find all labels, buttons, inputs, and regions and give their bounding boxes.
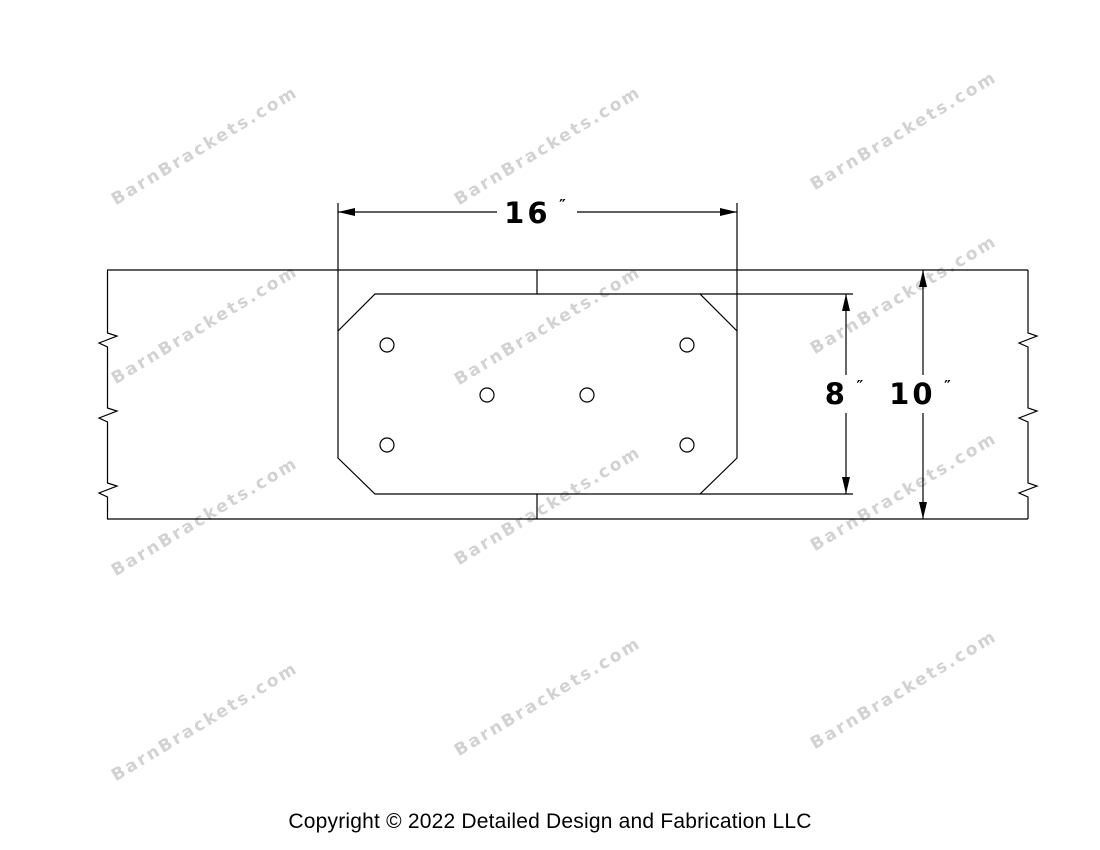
copyright-text: Copyright © 2022 Detailed Design and Fab… xyxy=(0,810,1100,834)
bolt-hole xyxy=(680,438,694,452)
arrowhead-up xyxy=(842,294,850,311)
drawing-page: BarnBrackets.comBarnBrackets.comBarnBrac… xyxy=(0,0,1100,850)
bracket-outline xyxy=(338,294,737,494)
dimension-bracket-width: 16 ″ xyxy=(338,194,737,331)
arrowhead-right xyxy=(720,208,737,216)
bolt-hole xyxy=(680,338,694,352)
arrowhead-left xyxy=(338,208,355,216)
bracket-drawing: 16 ″ 8 ″ 10 ″ xyxy=(0,0,1100,850)
bolt-hole xyxy=(580,388,594,402)
beam-left-edge-break xyxy=(99,270,117,519)
dimension-bracket-height: 8 ″ xyxy=(700,294,870,494)
beam-right-edge-break xyxy=(1019,270,1037,519)
arrowhead-up xyxy=(919,270,927,287)
bolt-hole xyxy=(380,438,394,452)
dimension-beam-height: 10 ″ xyxy=(889,270,954,519)
bracket-plate xyxy=(338,294,737,494)
arrowhead-down xyxy=(842,477,850,494)
bolt-hole xyxy=(380,338,394,352)
bolt-hole xyxy=(480,388,494,402)
arrowhead-down xyxy=(919,502,927,519)
